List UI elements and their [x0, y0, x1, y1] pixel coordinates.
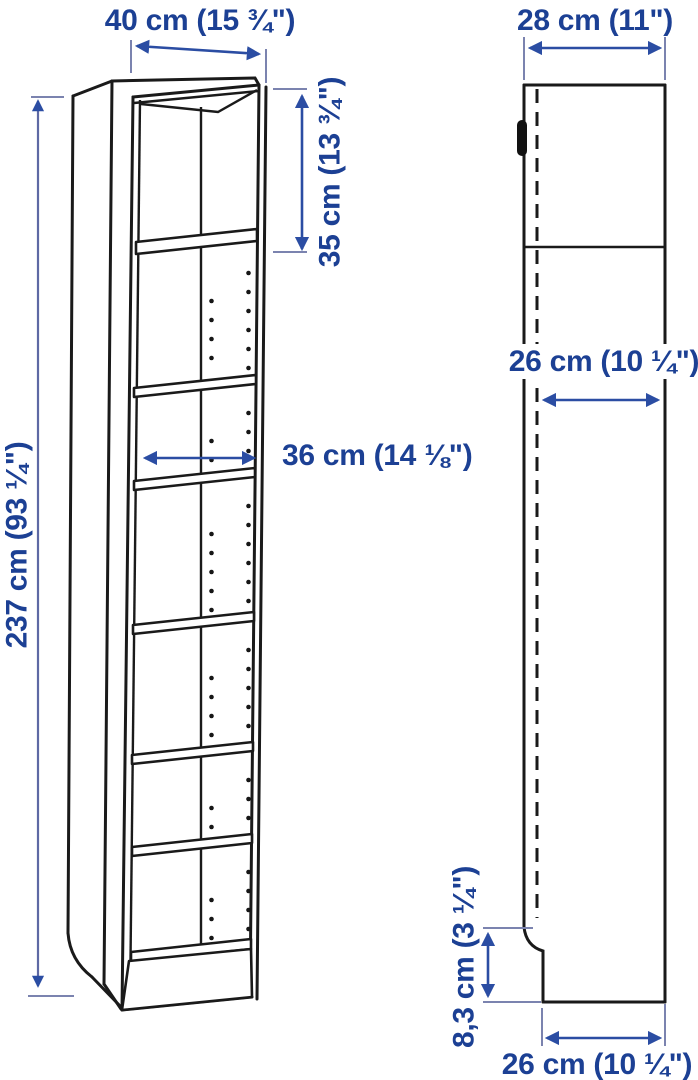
- plinth-height-label: 8,3 cm (3 ¼"): [448, 866, 481, 1048]
- front-width-label: 40 cm (15 ¾"): [105, 4, 295, 37]
- wall-anchor-tab: [517, 120, 527, 156]
- front-view-shelves: [122, 229, 257, 1010]
- inner-width-label: 36 cm (14 ⅛"): [282, 439, 472, 472]
- bookcase-dimension-diagram: 40 cm (15 ¾") 28 cm (11") 35 cm (13 ¾") …: [0, 0, 698, 1080]
- front-view-drawing: [68, 78, 266, 1010]
- bookcase-line-drawing: [0, 0, 698, 1080]
- base-depth-label: 26 cm (10 ¼"): [502, 1048, 692, 1080]
- side-view-drawing: [517, 85, 665, 1002]
- inner-depth-label: 26 cm (10 ¼"): [502, 344, 698, 379]
- front-height-label: 237 cm (93 ¼"): [1, 442, 34, 649]
- side-depth-label: 28 cm (11"): [517, 4, 673, 37]
- top-section-height-label: 35 cm (13 ¾"): [314, 77, 347, 267]
- front-width-arrow: [137, 46, 259, 54]
